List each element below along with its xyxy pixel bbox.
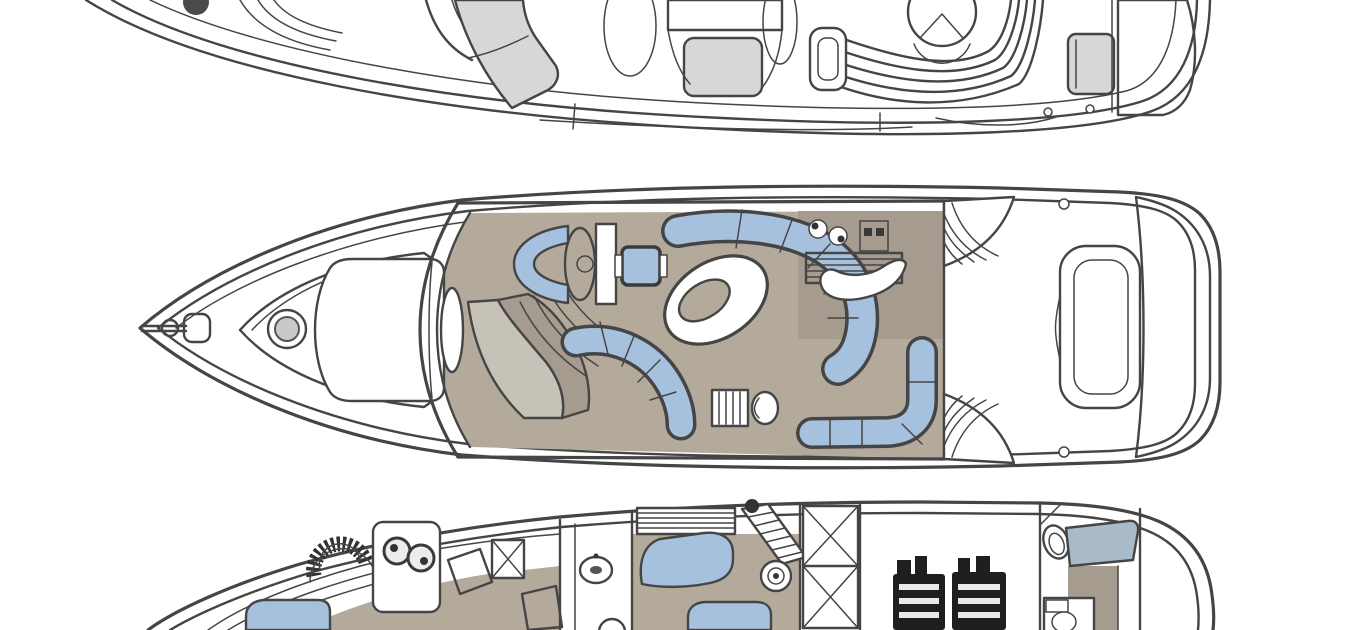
dinette-table — [908, 0, 976, 46]
galley-sink-2 — [829, 227, 847, 245]
vanity-sinks — [373, 522, 440, 612]
engine-room — [893, 556, 1006, 630]
guest-sofa — [641, 533, 733, 587]
console-oval-left — [604, 0, 656, 76]
wet-bar-sink — [752, 392, 778, 424]
companion-table-tab-r — [660, 255, 667, 277]
flybridge-windscreen-arc-3 — [274, 0, 342, 33]
hanging-lockers — [803, 506, 858, 628]
galley-sink-1-drain — [812, 223, 819, 230]
sun-lounger-seat — [455, 0, 558, 108]
flybridge-deck-edge-line — [150, 0, 1176, 108]
guest-berth — [688, 602, 771, 630]
appliance-knob-2 — [876, 228, 884, 236]
stern-locker — [1068, 34, 1114, 94]
port-engine — [893, 556, 945, 630]
gunwale-fitting-top — [1059, 199, 1069, 209]
main-deck-plan — [140, 186, 1220, 468]
toilet — [599, 619, 625, 630]
wet-bar — [712, 390, 778, 426]
aft-sun-pad — [1118, 0, 1195, 115]
deck-fitting-1 — [1044, 108, 1052, 116]
flybridge-helm-seat-partial — [183, 0, 209, 15]
companion-table — [622, 247, 660, 285]
lower-deck-plan — [148, 499, 1214, 630]
deck-fitting-2 — [1086, 105, 1094, 113]
aft-berth-headboard — [1066, 521, 1138, 566]
helm-console — [596, 224, 616, 304]
console-oval-right — [763, 0, 797, 64]
companion-table-tab-l — [615, 255, 622, 277]
appliance-knob-1 — [864, 228, 872, 236]
cabin-wall-bottom — [458, 457, 944, 459]
yacht-deck-plans-page — [0, 0, 1345, 630]
forward-berth — [246, 600, 330, 630]
foredeck-hatch-inner — [275, 317, 299, 341]
starboard-engine — [952, 556, 1006, 630]
washbasin — [580, 554, 612, 584]
flybridge-windscreen-arc-2 — [258, 0, 336, 41]
flybridge-wet-bar — [684, 38, 762, 96]
windscreen-center-post — [441, 288, 463, 372]
galley-sink-1 — [809, 220, 827, 238]
aft-vanity — [1044, 598, 1094, 630]
louvered-hatch — [637, 508, 735, 534]
wardrobe — [492, 540, 524, 578]
flybridge-deck-plan — [86, 0, 1210, 134]
yacht-deck-plans-drawing — [0, 0, 1345, 630]
cabin-wall-top — [458, 201, 944, 203]
speaker — [761, 561, 791, 591]
gunwale-fitting-bottom — [1059, 447, 1069, 457]
galley-sink-2-drain — [838, 236, 845, 243]
